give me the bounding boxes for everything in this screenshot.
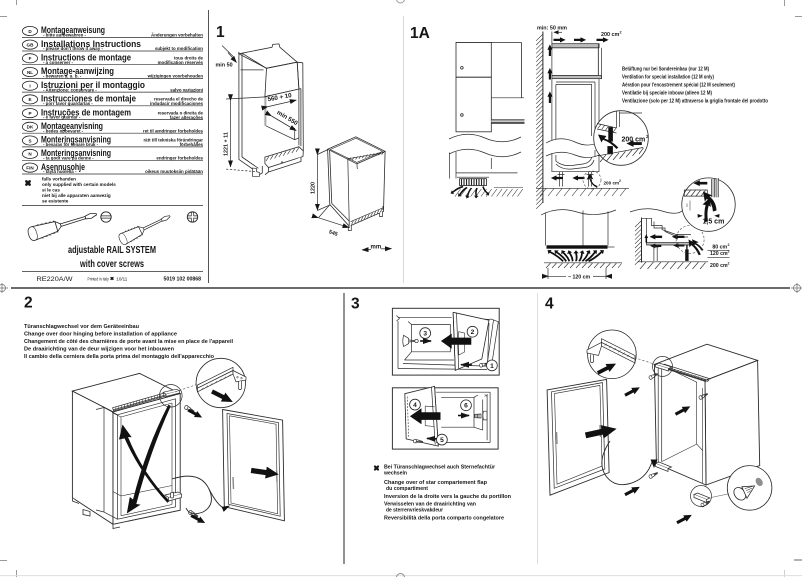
svg-text:- Attenzione: conservare -: - Attenzione: conservare - [43,87,97,92]
svg-text:- bevaras för senare bruk -: - bevaras för senare bruk - [43,142,99,147]
svg-text:NL: NL [27,70,33,75]
svg-text:Aération pour l'encastrement s: Aération pour l'encastrement spécial (12… [622,83,735,89]
svg-text:oikeus muutoksiin pidätään: oikeus muutoksiin pidätään [145,169,203,174]
svg-text:1: 1 [490,363,494,370]
svg-text:- please don't throw it away -: - please don't throw it away - [43,46,103,51]
svg-text:2: 2 [646,134,649,139]
svg-text:10/11: 10/11 [116,276,127,281]
svg-text:120 cm: 120 cm [710,251,728,257]
svg-text:Reversibilità della porta comp: Reversibilità della porta comparto conge… [384,516,504,522]
svg-text:- ta godt vare på denne -: - ta godt vare på denne - [43,156,94,161]
svg-text:4: 4 [545,296,554,313]
svg-text:I: I [29,84,30,89]
svg-text:Changement de côté des charniè: Changement de côté des charnières de por… [24,339,233,345]
svg-text:- täytä huolella -: - täytä huolella - [43,169,77,174]
svg-text:niet bij alle apparaten aanwez: niet bij alle apparaten aanwezig [42,193,111,198]
svg-text:2: 2 [471,329,475,336]
svg-text:1220: 1220 [311,182,317,194]
svg-text:de sterrenvrieskvakdeur: de sterrenvrieskvakdeur [386,508,444,514]
svg-text:- bedes opbevaret -: - bedes opbevaret - [43,128,84,133]
svg-text:De draairichting van de deur w: De draairichting van de deur wijzigen vo… [24,346,175,352]
svg-text:- à conserver -: - à conserver - [43,60,74,65]
svg-text:- e favor guardar -: - e favor guardar - [43,115,81,120]
svg-text:1: 1 [216,24,225,41]
svg-text:3: 3 [351,296,360,313]
svg-text:1221 + 11: 1221 + 11 [224,132,230,156]
svg-text:545: 545 [328,229,339,238]
svg-text:Printed in Italy: Printed in Italy [88,276,110,281]
svg-text:DK: DK [27,125,34,130]
svg-text:fazer alterações: fazer alterações [170,115,204,120]
svg-text:2: 2 [728,243,730,247]
svg-text:indudacir modificaciones: indudacir modificaciones [150,101,204,106]
svg-text:se esistente: se esistente [42,199,69,204]
svg-text:min: 50 mm: min: 50 mm [537,26,567,32]
svg-text:200 cm: 200 cm [601,32,619,38]
svg-text:P: P [28,111,31,116]
svg-text:du compartiment: du compartiment [386,486,428,492]
svg-text:~ 120 cm: ~ 120 cm [568,275,590,281]
svg-text:Ventilatie bij speciale inbouw: Ventilatie bij speciale inbouw (alleen 1… [622,91,712,97]
svg-text:Ventilazione (solo per 12 M) a: Ventilazione (solo per 12 M) attraverso … [622,99,768,105]
svg-text:6: 6 [464,403,468,410]
svg-text:200 cm: 200 cm [622,137,646,144]
svg-text:3: 3 [423,331,427,338]
svg-text:mm: mm [371,244,382,250]
svg-text:GB: GB [27,42,35,47]
svg-text:si le cas: si le cas [42,188,60,193]
svg-text:modification réservés: modification réservés [158,60,204,65]
svg-text:N: N [28,152,32,157]
svg-text:Change over door hinging befor: Change over door hinging before installa… [24,331,177,337]
svg-text:E: E [28,97,31,102]
svg-text:wechseln: wechseln [383,471,407,477]
svg-text:2: 2 [619,179,621,183]
svg-text:endringer forbeholdes: endringer forbeholdes [156,156,203,161]
svg-text:Belüftung nur bei Sondereinbau: Belüftung nur bei Sondereinbau (nur 12 M… [622,67,709,73]
svg-text:- bewaren a. u. b. -: - bewaren a. u. b. - [43,74,82,79]
svg-text:F: F [29,56,32,61]
svg-text:2: 2 [24,295,33,312]
svg-text:Ventilation for special instal: Ventilation for special installation (12… [622,75,714,81]
svg-text:80 cm: 80 cm [712,245,727,251]
svg-text:5019 102 00868: 5019 102 00868 [164,277,202,283]
svg-text:ret til ændringer forbeholdes: ret til ændringer forbeholdes [143,128,204,133]
svg-text:- porr favor guardarlas -: - porr favor guardarlas - [43,101,93,106]
svg-text:4: 4 [413,402,417,409]
svg-text:5: 5 [440,437,444,444]
svg-text:adjustable RAIL SYSTEM: adjustable RAIL SYSTEM [68,244,156,256]
svg-text:1A: 1A [410,25,430,42]
svg-text:min 550: min 550 [275,109,299,127]
svg-text:Änderungen vorbehalten: Änderungen vorbehalten [151,33,203,38]
svg-text:wijzigingen voorbehouden: wijzigingen voorbehouden [147,74,204,79]
svg-text:salvo variazioni: salvo variazioni [170,87,203,92]
svg-text:with cover screws: with cover screws [79,258,144,270]
svg-text:subjekt to modification: subjekt to modification [155,46,203,51]
svg-text:förbehålles: förbehålles [180,142,204,147]
svg-text:2: 2 [728,262,730,266]
svg-text:falls vorhanden: falls vorhanden [42,177,76,182]
svg-text:FIN: FIN [26,165,34,170]
svg-text:Il cambio della cerniera della: Il cambio della cerniera della porta pri… [24,354,215,360]
svg-text:only supplied with certain mod: only supplied with certain models [42,182,116,187]
svg-text:Türanschlagwechsel vor dem Ger: Türanschlagwechsel vor dem Geräteeinbau [24,324,140,330]
svg-text:Inversion de la droite vers la: Inversion de la droite vers la gauche du… [384,494,512,500]
svg-text:200 cm: 200 cm [710,263,728,269]
svg-text:S: S [28,138,31,143]
svg-text:RE220A/W: RE220A/W [37,276,73,283]
svg-text:1,5 cm: 1,5 cm [703,219,725,226]
svg-text:2: 2 [620,31,622,35]
svg-text:D: D [28,29,32,34]
svg-text:200 cm: 200 cm [604,181,620,186]
svg-text:- bitte aufbewahren -: - bitte aufbewahren - [43,33,86,38]
svg-text:min 50: min 50 [216,63,233,69]
